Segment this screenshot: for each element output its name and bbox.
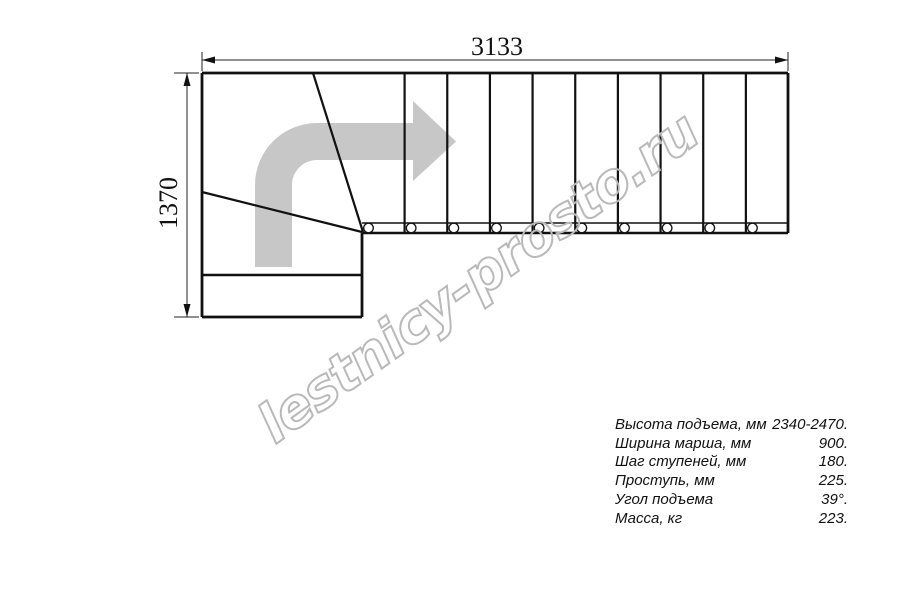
- height-arrowhead-bottom: [184, 304, 191, 317]
- spec-value: 39°.: [821, 491, 848, 510]
- spec-label: Угол подъема: [615, 491, 713, 510]
- width-arrowhead-left: [202, 57, 215, 64]
- baluster-circle: [364, 223, 374, 233]
- baluster-circles: [364, 223, 758, 233]
- spec-row: Проступь, мм 225.: [615, 472, 848, 491]
- spec-row: Ширина марша, мм 900.: [615, 435, 848, 454]
- baluster-circle: [492, 223, 502, 233]
- spec-value: 180.: [819, 453, 848, 472]
- spec-value: 900.: [819, 435, 848, 454]
- spec-label: Шаг ступеней, мм: [615, 453, 746, 472]
- baluster-circle: [705, 223, 715, 233]
- baluster-circle: [577, 223, 587, 233]
- drawing-canvas: 3133 1370 lestnicy-prosto.ru Высота подъ…: [0, 0, 900, 600]
- dimension-width-label: 3133: [471, 32, 523, 61]
- spec-value: 2340-2470.: [772, 416, 848, 435]
- baluster-circle: [449, 223, 459, 233]
- baluster-circle: [534, 223, 544, 233]
- spec-row: Масса, кг 223.: [615, 510, 848, 529]
- direction-arrow-icon: [255, 101, 456, 267]
- baluster-circle: [620, 223, 630, 233]
- spec-row: Шаг ступеней, мм 180.: [615, 453, 848, 472]
- dimension-height-label: 1370: [154, 177, 183, 229]
- spec-row: Высота подъема, мм 2340-2470.: [615, 416, 848, 435]
- baluster-circle: [662, 223, 672, 233]
- spec-value: 223.: [819, 510, 848, 529]
- spec-row: Угол подъема 39°.: [615, 491, 848, 510]
- width-arrowhead-right: [775, 57, 788, 64]
- spec-label: Масса, кг: [615, 510, 682, 529]
- baluster-circle: [406, 223, 416, 233]
- height-arrowhead-top: [184, 73, 191, 86]
- spec-label: Высота подъема, мм: [615, 416, 767, 435]
- straight-tread-lines: [405, 73, 746, 233]
- spec-label: Проступь, мм: [615, 472, 715, 491]
- baluster-circle: [748, 223, 758, 233]
- specs-table: Высота подъема, мм 2340-2470. Ширина мар…: [615, 416, 848, 528]
- spec-value: 225.: [819, 472, 848, 491]
- spec-label: Ширина марша, мм: [615, 435, 751, 454]
